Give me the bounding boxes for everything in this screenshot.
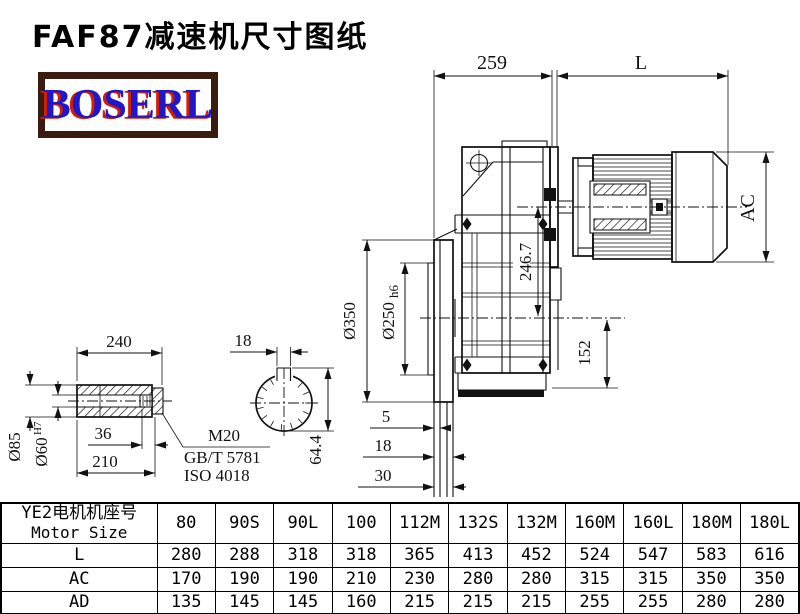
col-header-112M: 112M	[390, 503, 448, 543]
table-header-row: YE2电机机座号 Motor Size 80 90S 90L 100 112M …	[1, 503, 799, 543]
lifting-lug	[502, 141, 547, 147]
value-cell: 315	[624, 567, 682, 591]
value-cell: 288	[215, 543, 273, 567]
col-header-180M: 180M	[682, 503, 740, 543]
table-row-L: L 280 288 318 318 365 413 452 524 547 58…	[1, 543, 799, 567]
dim-246.7-label: 246.7	[516, 242, 535, 281]
section-centerlines	[250, 368, 318, 438]
value-cell: 315	[566, 567, 624, 591]
bearing-cover-lines	[550, 268, 561, 370]
table-row-AD: AD 135 145 145 160 215 215 215 255 255 2…	[1, 591, 799, 614]
value-cell: 318	[332, 543, 390, 567]
col-header-80: 80	[157, 503, 215, 543]
row-label-AD: AD	[1, 591, 157, 614]
dim-36-label: 36	[95, 424, 112, 443]
row-label-L: L	[1, 543, 157, 567]
col-header-132S: 132S	[449, 503, 507, 543]
gearbox-housing-outline	[462, 147, 550, 373]
value-cell: 318	[274, 543, 332, 567]
motor-size-header-zh: YE2电机机座号	[2, 504, 157, 524]
main-dimensions: 259 L AC 246.7 152 Ø350	[340, 52, 774, 487]
col-header-160L: 160L	[624, 503, 682, 543]
value-cell: 190	[215, 567, 273, 591]
thread-spec-label: M20	[208, 426, 240, 445]
value-cell: 583	[682, 543, 740, 567]
shaft-wall-hatch	[77, 385, 152, 395]
value-cell: 145	[274, 591, 332, 614]
gearbox-view	[420, 141, 747, 497]
dim-5-label: 5	[382, 407, 391, 426]
value-cell: 413	[449, 543, 507, 567]
fan-cowl	[672, 152, 727, 262]
value-cell: 190	[274, 567, 332, 591]
dim-spigot-label: Ø250	[379, 302, 398, 340]
value-cell: 215	[390, 591, 448, 614]
dim-259-label: 259	[477, 52, 507, 74]
end-shield-block	[578, 248, 593, 256]
value-cell: 145	[215, 591, 273, 614]
dim-152-label: 152	[575, 340, 594, 366]
dim-shaft-od-label: Ø85	[5, 432, 24, 461]
dimension-drawing: 259 L AC 246.7 152 Ø350	[0, 0, 800, 502]
value-cell: 280	[682, 591, 740, 614]
value-cell: 280	[741, 591, 799, 614]
eyebolt-cross	[466, 150, 492, 176]
dim-210-label: 210	[92, 452, 118, 471]
col-header-180L: 180L	[741, 503, 799, 543]
dim-keyway-width-label: 18	[235, 331, 252, 350]
dim-30-label: 30	[375, 466, 392, 485]
motor-size-header-en: Motor Size	[2, 524, 157, 542]
value-cell: 350	[682, 567, 740, 591]
flange-hub-lines	[434, 402, 453, 497]
value-cell: 365	[390, 543, 448, 567]
dim-L-label: L	[635, 52, 647, 74]
table-row-AC: AC 170 190 190 210 230 280 280 315 315 3…	[1, 567, 799, 591]
dim-18-label: 18	[375, 436, 392, 455]
value-cell: 135	[157, 591, 215, 614]
winding-hatch	[594, 184, 646, 195]
winding-hatch	[594, 219, 646, 230]
dim-bore-label: Ø60	[32, 437, 51, 466]
value-cell: 280	[157, 543, 215, 567]
end-shield-block	[578, 158, 593, 166]
keyway-section: 18 64.4	[230, 331, 334, 465]
value-cell: 280	[449, 567, 507, 591]
shaft-detail: 240 Ø85 Ø60 H7 36 210 M20 GB/T 5781	[5, 332, 270, 485]
value-cell: 215	[507, 591, 565, 614]
value-cell: 255	[566, 591, 624, 614]
housing-chamfer-line	[463, 162, 543, 196]
value-cell: 210	[332, 567, 390, 591]
base-pad	[458, 390, 544, 397]
dim-bore-tol-label: H7	[32, 421, 44, 435]
flange-spigot	[428, 263, 434, 375]
shaft-wall-hatch	[77, 407, 152, 417]
value-cell: 170	[157, 567, 215, 591]
value-cell: 280	[507, 567, 565, 591]
value-cell: 524	[566, 543, 624, 567]
col-header-90S: 90S	[215, 503, 273, 543]
thread-std-gb-label: GB/T 5781	[184, 448, 261, 467]
thread-std-iso-label: ISO 4018	[184, 466, 250, 485]
housing-left-wall	[472, 233, 477, 357]
value-cell: 160	[332, 591, 390, 614]
col-header-90L: 90L	[274, 503, 332, 543]
bolt-icon	[539, 359, 548, 372]
value-cell: 350	[741, 567, 799, 591]
dim-AC-label: AC	[737, 194, 759, 222]
motor-size-header: YE2电机机座号 Motor Size	[1, 503, 157, 543]
bolt-icon	[463, 359, 472, 372]
row-label-AC: AC	[1, 567, 157, 591]
value-cell: 255	[624, 591, 682, 614]
ext-lines-350	[362, 240, 434, 402]
dim-spigot-tol-label: h6	[386, 285, 401, 299]
base-plate	[458, 373, 546, 390]
dim-keyway-depth-label: 64.4	[306, 435, 325, 465]
dim-flange-od-label: Ø350	[340, 302, 359, 340]
ext-lines-keyway	[277, 347, 291, 366]
page: FAF87减速机尺寸图纸 BOSERL	[0, 0, 800, 614]
value-cell: 616	[741, 543, 799, 567]
value-cell: 452	[507, 543, 565, 567]
col-header-100: 100	[332, 503, 390, 543]
ext-lines-250	[400, 263, 428, 375]
col-header-160M: 160M	[566, 503, 624, 543]
housing-flange-lines	[462, 263, 550, 345]
value-cell: 215	[449, 591, 507, 614]
output-flange-plate	[434, 240, 453, 402]
value-cell: 547	[624, 543, 682, 567]
col-header-132M: 132M	[507, 503, 565, 543]
value-cell: 230	[390, 567, 448, 591]
motor-size-table: YE2电机机座号 Motor Size 80 90S 90L 100 112M …	[0, 502, 800, 614]
dim-240-label: 240	[106, 332, 132, 351]
bolt-icon	[463, 218, 472, 231]
